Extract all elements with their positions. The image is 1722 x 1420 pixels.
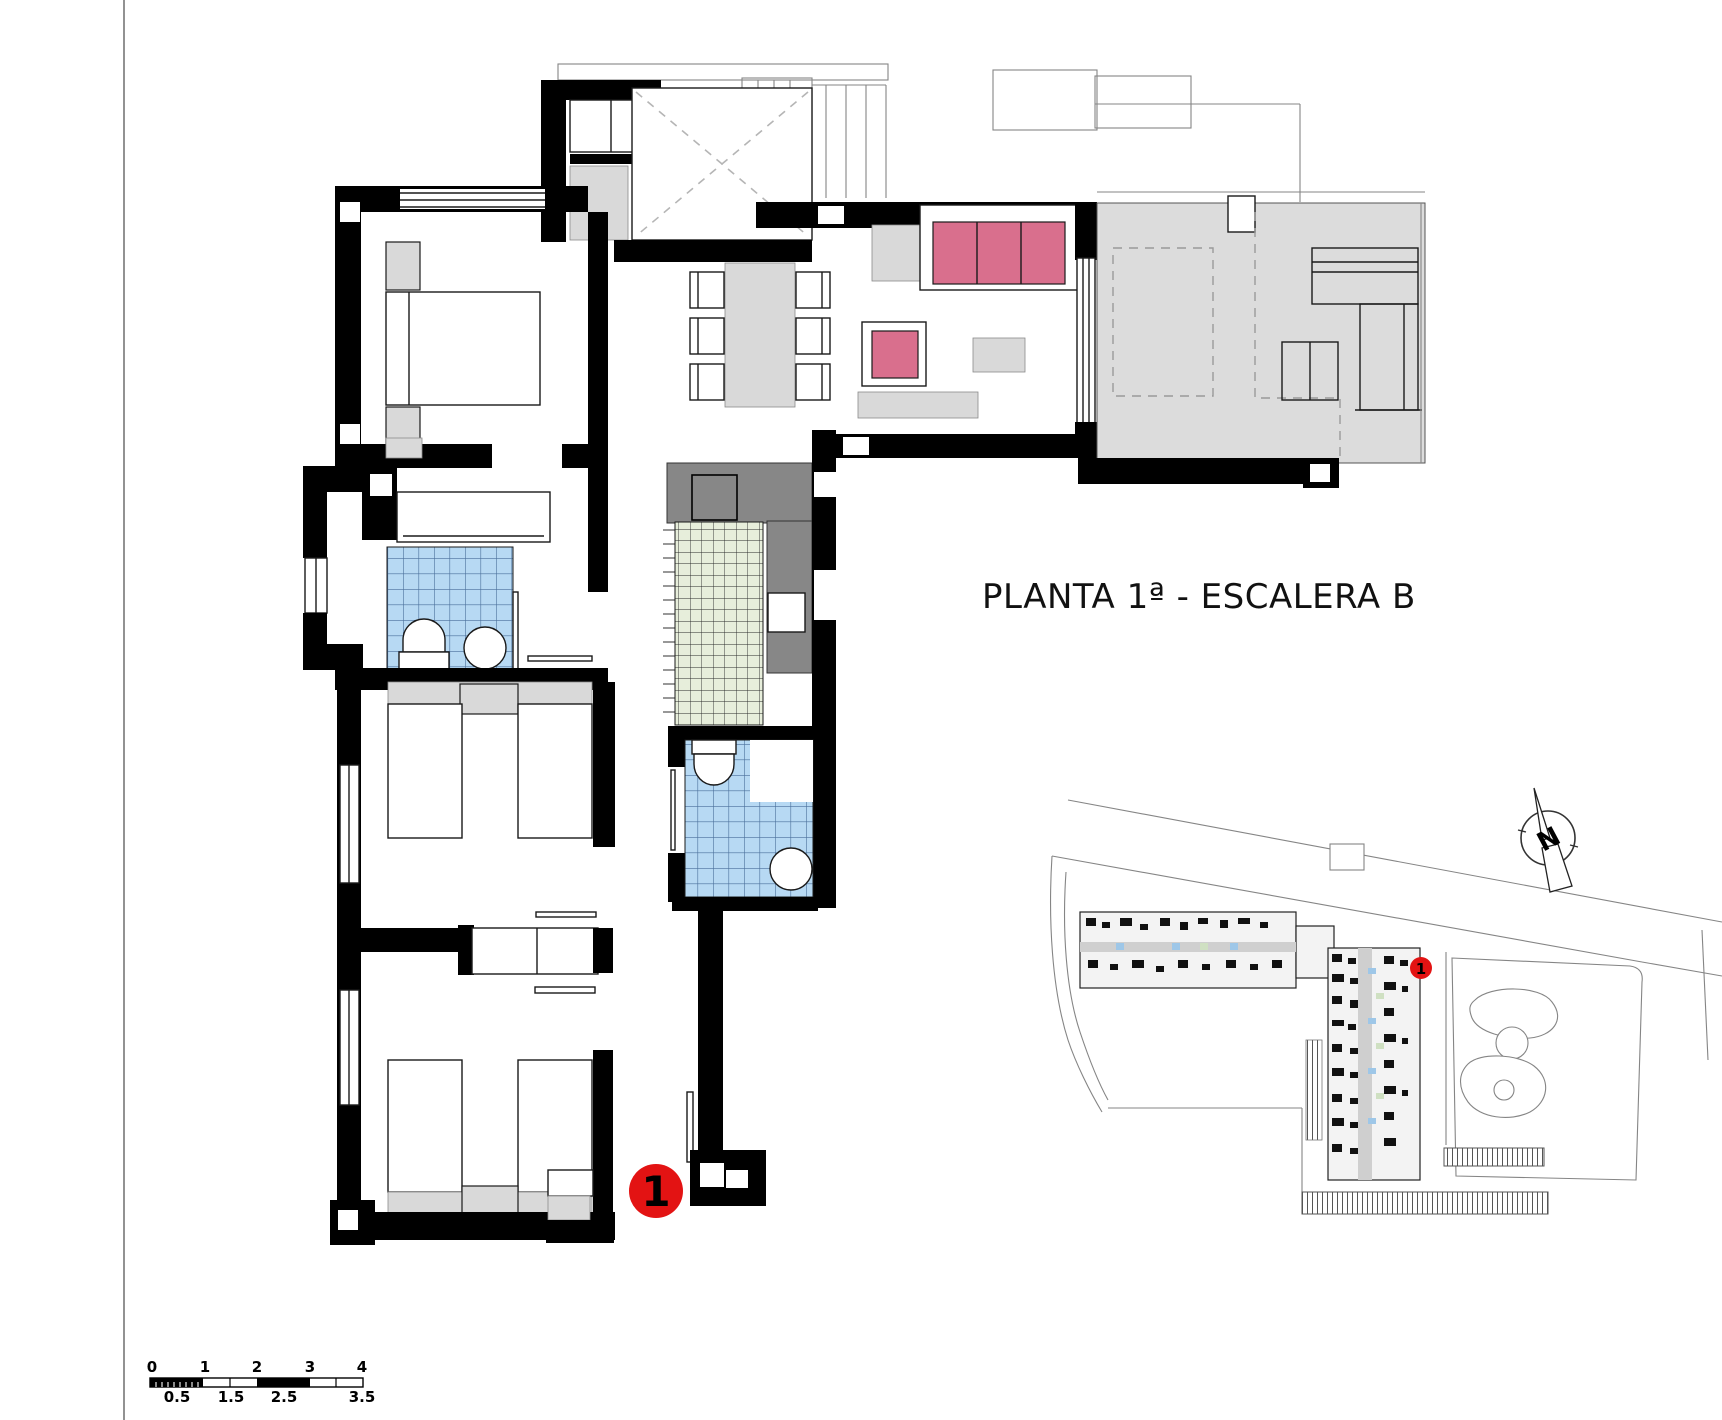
bathtub <box>397 492 550 542</box>
wall-column <box>1310 464 1330 482</box>
site-unit-number: 1 <box>1416 960 1426 978</box>
scale-label: 2.5 <box>271 1388 298 1406</box>
site-walkway-hatch <box>1306 1040 1322 1140</box>
dining-chair <box>690 272 724 308</box>
pool-shape <box>1496 1027 1528 1059</box>
dining-table <box>725 263 795 407</box>
site-building-a <box>1080 912 1334 988</box>
bedroom-2 <box>337 682 615 940</box>
site-pool-garden <box>1461 989 1558 1117</box>
site-parking-hatch <box>1444 1148 1544 1166</box>
scale-label: 0 <box>147 1358 157 1376</box>
bedroom-3 <box>330 952 615 1245</box>
door-threshold <box>1228 196 1255 232</box>
scale-label: 0.5 <box>164 1388 191 1406</box>
single-bed <box>518 704 592 838</box>
shelf-line <box>535 987 595 993</box>
door-leaf <box>671 770 675 850</box>
wall-column <box>340 424 360 444</box>
shower-screen <box>513 592 518 670</box>
single-bed <box>388 1060 462 1192</box>
scale-label: 1.5 <box>218 1388 245 1406</box>
door-opening <box>814 472 836 497</box>
wall-column <box>370 474 392 496</box>
wall-column <box>818 206 844 224</box>
utility-area <box>667 463 812 523</box>
kitchen-island <box>768 593 805 632</box>
sofa <box>933 222 1065 284</box>
wall-column <box>338 1210 358 1230</box>
washbasin <box>464 627 506 669</box>
wall-column <box>726 1170 748 1188</box>
dining-chair <box>796 272 830 308</box>
window <box>400 189 545 209</box>
scale-label: 4 <box>357 1358 367 1376</box>
wall-column <box>700 1163 724 1187</box>
dining-chair <box>690 364 724 400</box>
scale-label: 2 <box>252 1358 262 1376</box>
kitchen-floor-tiles <box>675 522 763 725</box>
wardrobe <box>472 928 598 974</box>
scale-label: 3.5 <box>349 1388 376 1406</box>
sliding-window <box>1077 258 1095 424</box>
entry-step <box>548 1196 590 1220</box>
dining-chair <box>796 364 830 400</box>
wall-column <box>340 202 360 222</box>
nightstand <box>386 242 420 290</box>
nightstand <box>460 684 518 714</box>
door-opening <box>814 570 836 620</box>
unit-number: 1 <box>641 1167 670 1216</box>
kitchen-counter-ticks <box>663 530 675 712</box>
appliance <box>692 475 737 520</box>
bathroom-2 <box>668 726 833 1206</box>
north-compass-icon: N <box>1518 788 1578 892</box>
armchair <box>872 331 918 378</box>
scale-bar: 0 1 2 3 4 0.5 1.5 2.5 3.5 <box>147 1358 376 1406</box>
site-plan: 1 N <box>1051 788 1722 1214</box>
desk-line <box>536 912 596 917</box>
coffee-table <box>973 338 1025 372</box>
entry-step <box>548 1170 593 1196</box>
scale-label: 3 <box>305 1358 315 1376</box>
pool-shape <box>1494 1080 1514 1100</box>
washbasin <box>770 848 812 890</box>
dining-chair <box>796 318 830 354</box>
single-bed <box>388 704 462 838</box>
scale-label: 1 <box>200 1358 210 1376</box>
nightstand <box>462 1186 518 1213</box>
floor-plan-drawing: 1 PLANTA 1ª - ESCALERA B <box>0 0 1722 1420</box>
toilet <box>692 740 736 754</box>
site-unit-badge[interactable]: 1 <box>1410 957 1432 979</box>
shower-area <box>750 740 813 802</box>
bathroom-1 <box>303 438 608 690</box>
site-kiosk <box>1330 844 1364 870</box>
cabinet <box>386 438 422 458</box>
site-building-b <box>1328 948 1420 1180</box>
site-parking-hatch <box>1302 1192 1548 1214</box>
wall-column <box>843 437 869 455</box>
tv-bench <box>858 392 978 418</box>
toilet <box>399 652 449 670</box>
bed-footboard <box>388 1192 462 1213</box>
side-table <box>872 225 922 281</box>
unit-number-badge[interactable]: 1 <box>629 1164 683 1218</box>
terrace-floor <box>1097 203 1425 463</box>
dining-chair <box>690 318 724 354</box>
plan-sheet: 1 PLANTA 1ª - ESCALERA B <box>0 0 1722 1420</box>
closet <box>337 925 613 975</box>
apartment-plan: 1 <box>303 64 1425 1245</box>
page-title: PLANTA 1ª - ESCALERA B <box>982 577 1416 617</box>
terrace <box>1078 192 1425 488</box>
door-leaf <box>528 656 592 661</box>
stair-elevator-core <box>541 80 812 262</box>
